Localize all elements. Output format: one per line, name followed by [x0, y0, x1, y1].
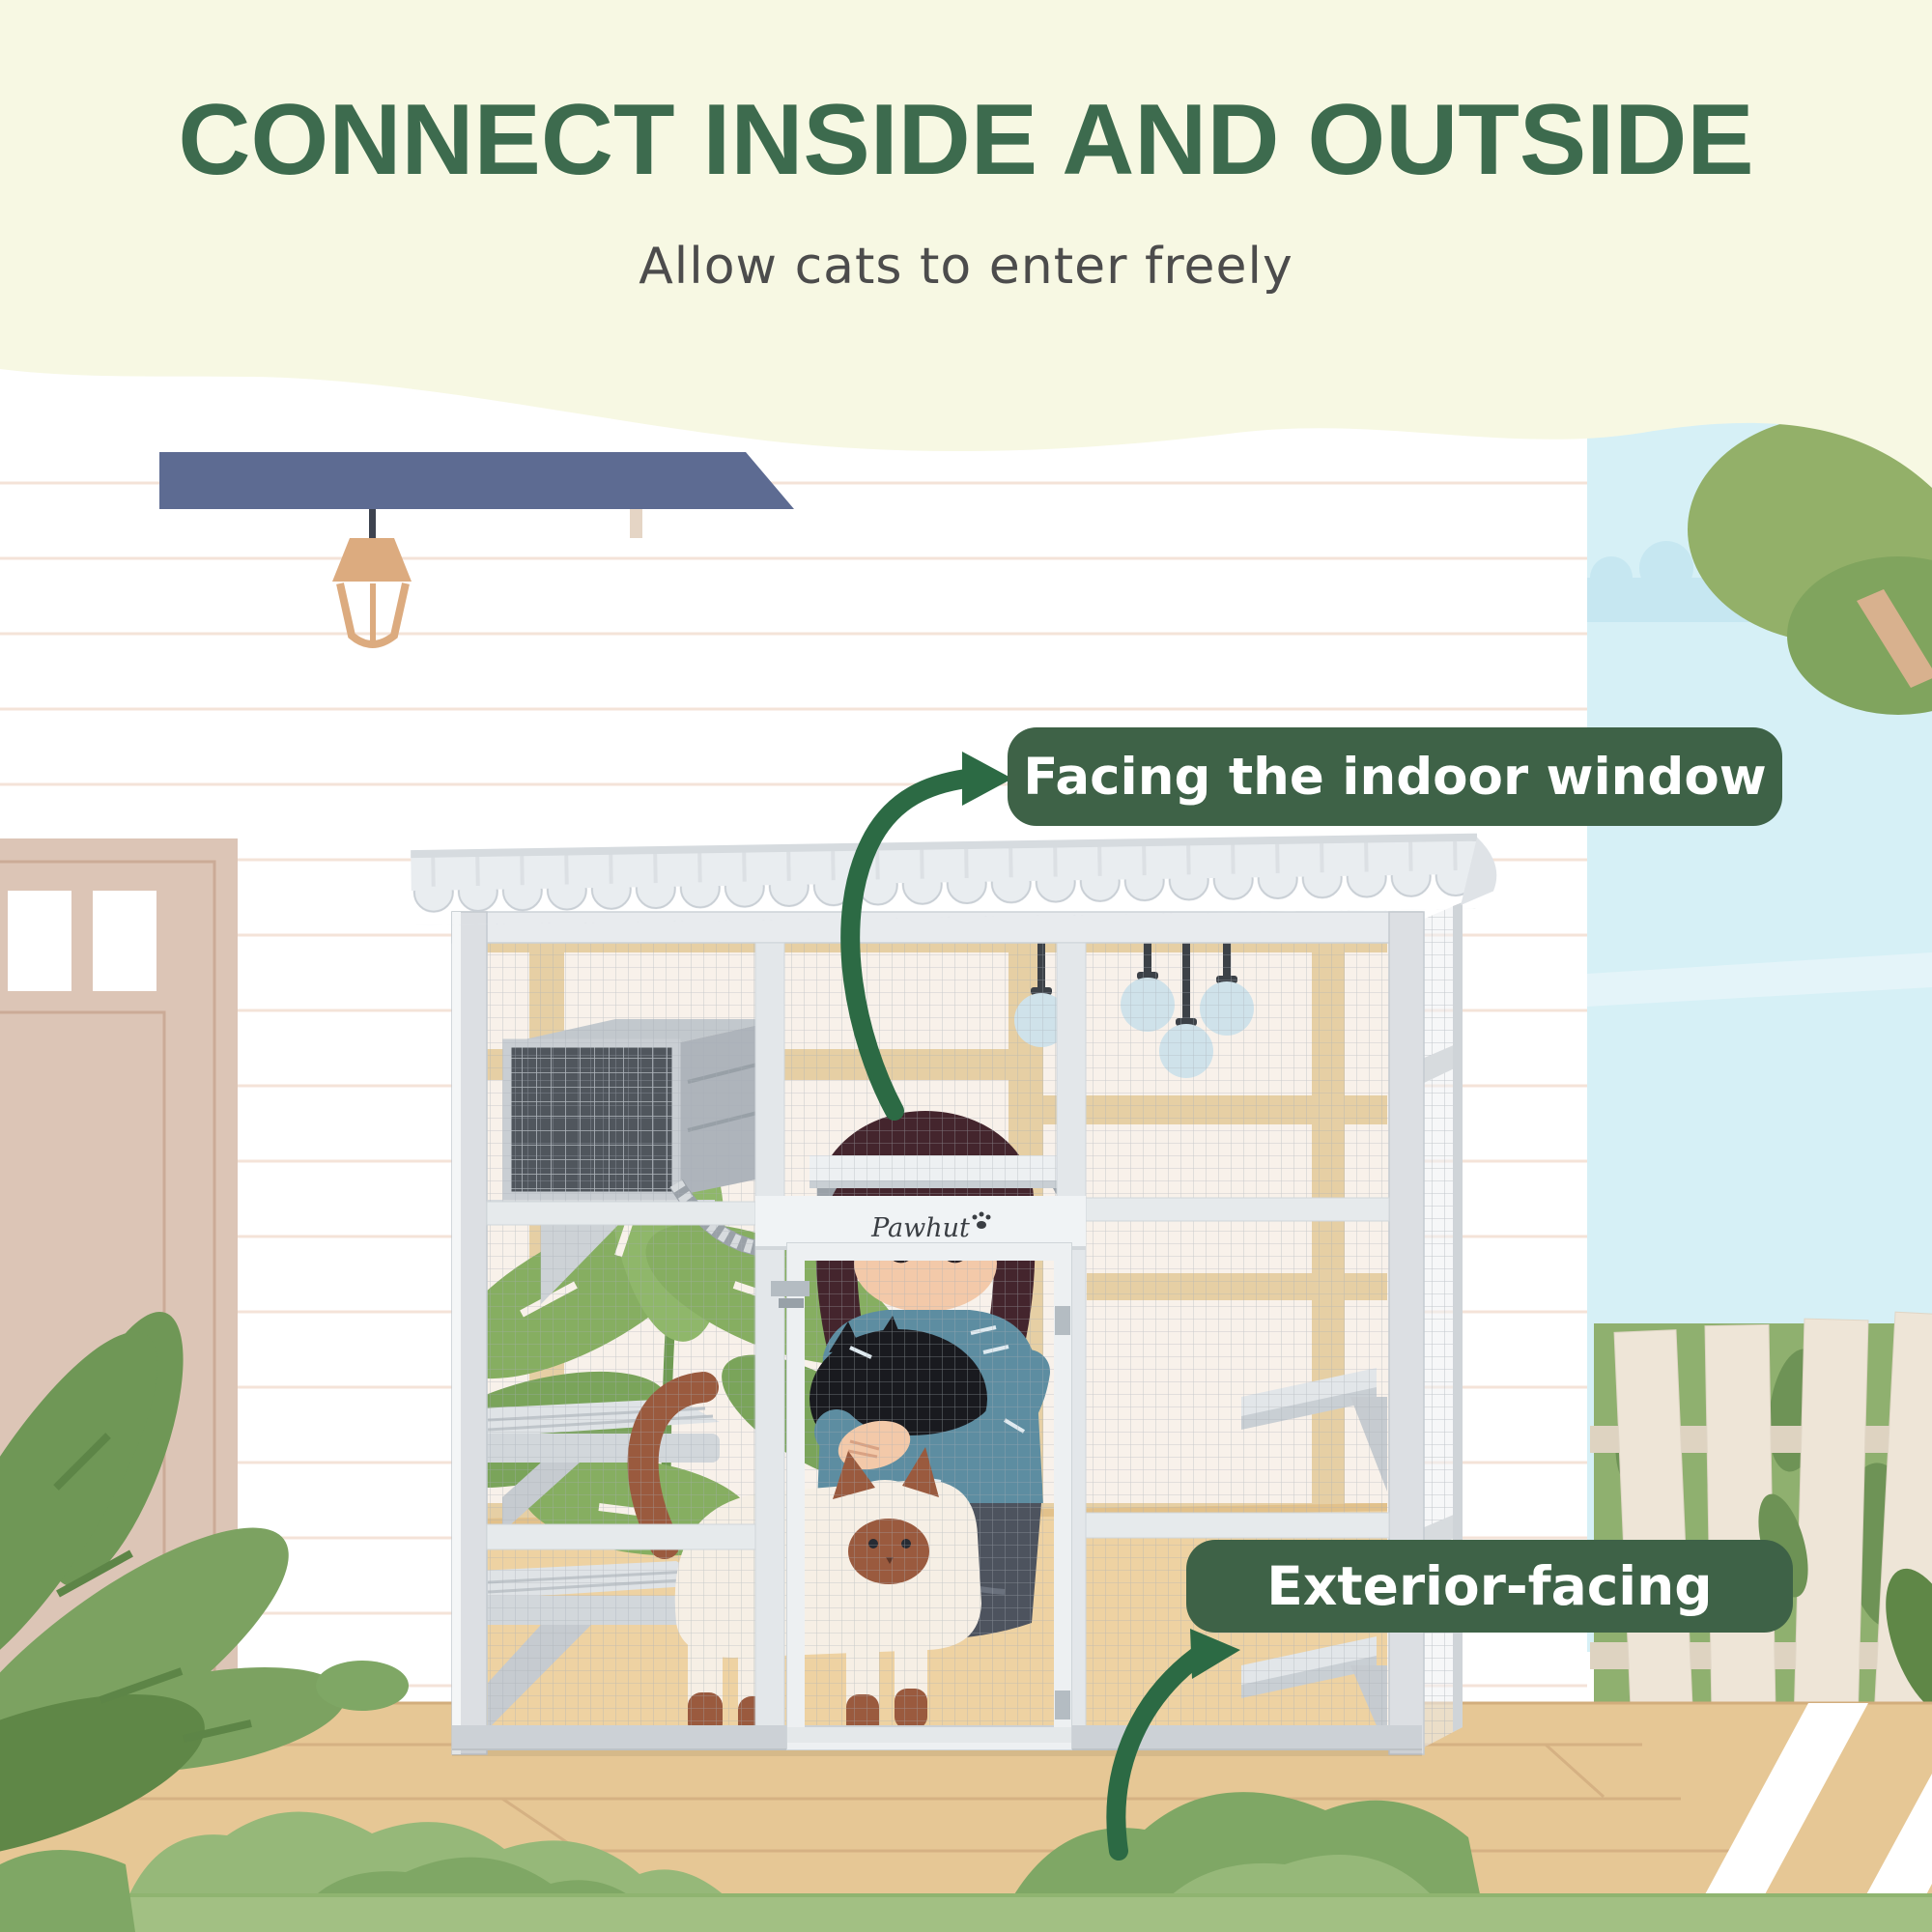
door-window: [93, 891, 156, 991]
picket-fence: [1590, 1312, 1932, 1759]
page-title: CONNECT INSIDE AND OUTSIDE: [0, 83, 1932, 198]
awning-bracket: [630, 509, 642, 538]
garden-bush: [316, 1661, 409, 1711]
page-subtitle: Allow cats to enter freely: [0, 238, 1932, 296]
brand-logo-text: Pawhut: [870, 1213, 970, 1243]
door-hinge: [1055, 1306, 1070, 1335]
fence-slat: [1794, 1319, 1868, 1736]
door-window: [8, 891, 71, 991]
door-hinge: [1055, 1690, 1070, 1719]
callout-exterior: Exterior-facing: [1186, 1540, 1793, 1633]
callout-indoor-window: Facing the indoor window: [1008, 727, 1782, 826]
product-infographic: Pawhut: [0, 0, 1932, 1932]
